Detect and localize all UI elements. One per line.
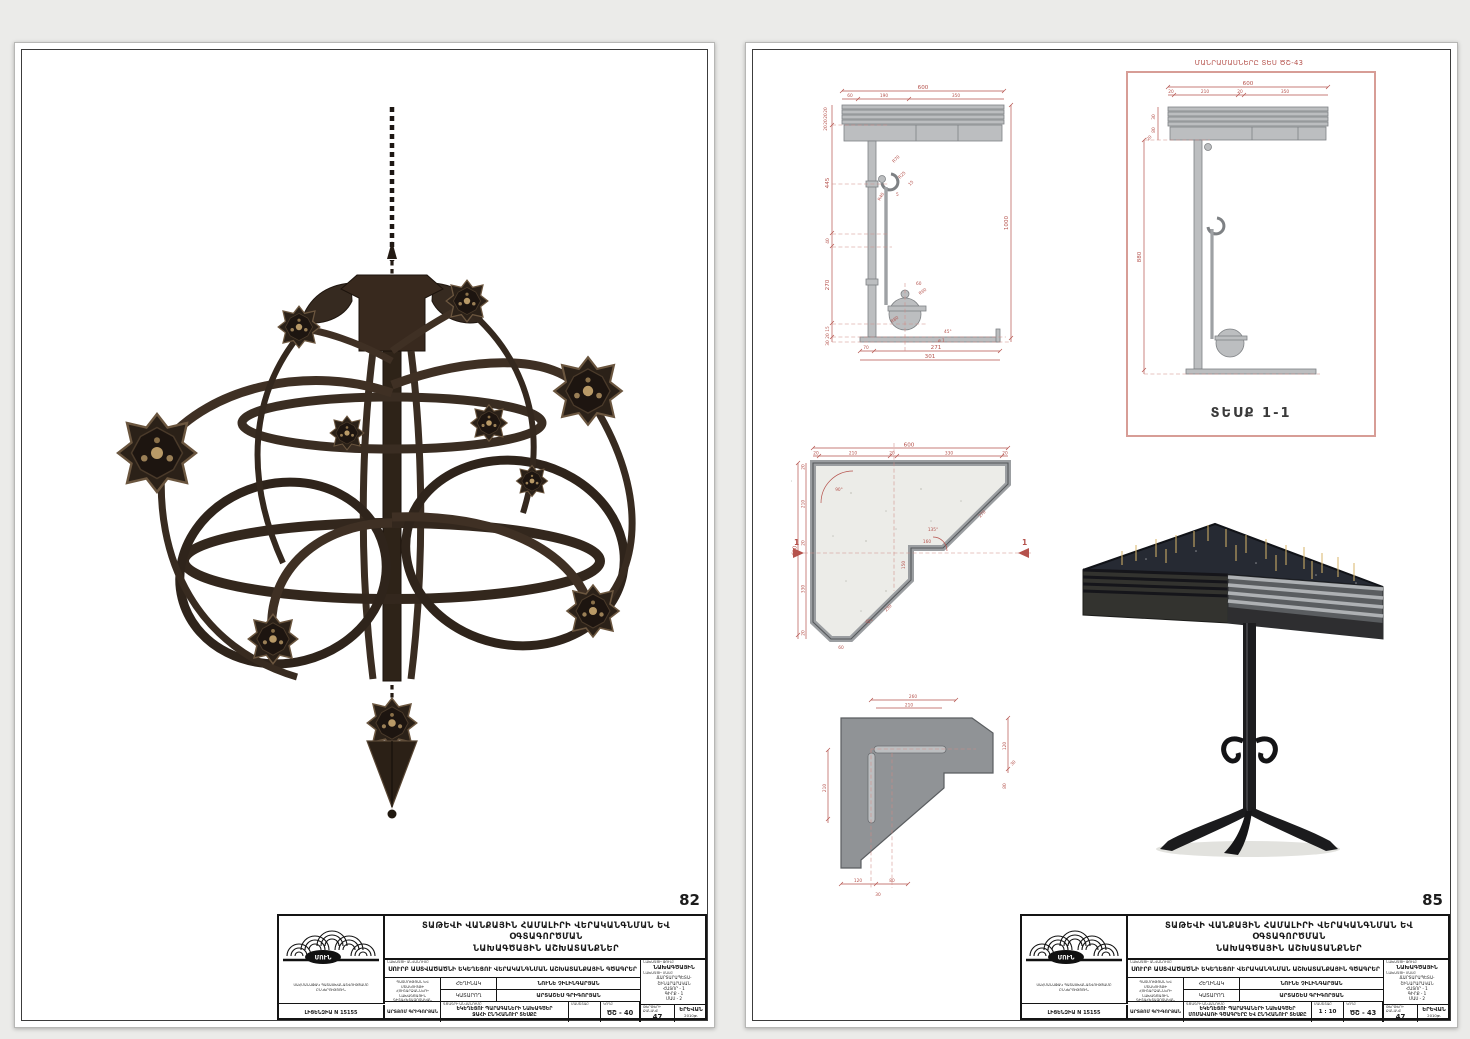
dim-label: 160: [923, 539, 931, 545]
dim-label: 600: [904, 443, 915, 449]
dim-label: R25: [897, 170, 907, 180]
candle-table-render: [1076, 511, 1421, 863]
section-b-metal: [1168, 107, 1328, 374]
license-number: ԼԻՑԵՆԶԻԱ N 15155: [279, 1005, 385, 1020]
performer-name: ԱՐՏԱՇԵՍ ԳՐԻԳՈՐՅԱՆ: [1240, 990, 1384, 1002]
detail-plate-drawing: 260 210 210 120 30 80 120 80 30: [816, 688, 1021, 908]
dim-label: 20: [823, 119, 829, 125]
code-label: ԿՈԴԸ: [1344, 1002, 1382, 1007]
drawing-album-view: 82 ՄՈՒՆ ՍԱՀՄԱՆԱՓԱԿ ՊԱՏԱՍԽ: [0, 0, 1470, 1039]
album-header: ՏԱԹԵՎԻ ՎԱՆՔԱՅԻՆ ՀԱՄԱԼԻՐԻ ՎԵՐԱԿԱՆԳՆՄԱՆ ԵՎ…: [385, 916, 707, 960]
dim-label: 60: [838, 645, 844, 651]
dim-label: 270: [825, 279, 831, 290]
author-label: ՀԵՂԻՆԱԿ: [441, 978, 497, 990]
project-label: ՆԱԽԱԳԾԻ ԱՆՎԱՆՈՒՄԸ: [385, 960, 640, 965]
license-number: ԼԻՑԵՆԶԻԱ N 15155: [1022, 1005, 1128, 1020]
project-cell: ՆԱԽԱԳԾԻ ԱՆՎԱՆՈՒՄԸ ՍՈՒՐԲ ԱՍՏՎԱԾԱԾՆԻ ԵԿԵՂԵ…: [1128, 960, 1384, 978]
section-drawing-b: 600 20 210 20 350 30 80 20 880: [1130, 77, 1370, 393]
project-name: ՍՈՒՐԲ ԱՍՏՎԱԾԱԾՆԻ ԵԿԵՂԵՑՈՒ ՎԵՐԱԿԱՆԳՆՄԱՆ Ա…: [385, 966, 640, 973]
title-block: ՄՈՒՆ ՍԱՀՄԱՆԱՓԱԿ ՊԱՏԱՍԽԱՆԱՏՎՈՒԹՅԱՄԲ ԸՆԿԵՐ…: [1020, 914, 1450, 1020]
code-cell: ԿՈԴԸ ԾՇ - 43: [1344, 1002, 1384, 1022]
dim-label: 20: [823, 125, 829, 131]
project-name: ՍՈՒՐԲ ԱՍՏՎԱԾԱԾՆԻ ԵԿԵՂԵՑՈՒ ՎԵՐԱԿԱՆԳՆՄԱՆ Ա…: [1128, 966, 1383, 973]
chandelier-render: [51, 93, 696, 868]
section-flag: 1: [1022, 538, 1027, 547]
dim-label: 20: [823, 107, 829, 113]
detail-body: [841, 718, 993, 868]
dim-label: 15: [907, 179, 915, 187]
dim-label: 20: [825, 333, 831, 339]
performer-label: ԿԱՏԱՐՈՂ: [1184, 990, 1240, 1002]
project-cell: ՆԱԽԱԳԾԻ ԱՆՎԱՆՈՒՄԸ ՍՈՒՐԲ ԱՍՏՎԱԾԱԾՆԻ ԵԿԵՂԵ…: [385, 960, 641, 978]
company-name: ՍԱՀՄԱՆԱՓԱԿ ՊԱՏԱՍԽԱՆԱՏՎՈՒԹՅԱՄԲ ԸՆԿԵՐՈՒԹՅՈ…: [279, 972, 385, 1004]
part-line5: ՄԱՍ - 2: [1384, 996, 1450, 1001]
code-label: ԿՈԴԸ: [601, 1002, 639, 1007]
dim-label: 30: [875, 892, 881, 898]
city-cell: ԵՐԵՎԱՆ 2010թ.: [1418, 1004, 1450, 1022]
table-pedestal: [1156, 623, 1340, 857]
dim-label: 210: [1201, 89, 1209, 95]
scale-value: 1 : 10: [1312, 1009, 1343, 1015]
dim-label: 600: [1243, 81, 1254, 87]
dim-label: 20: [801, 630, 807, 636]
sheet-count-label: ԹԵՐԹԵՐԻ ՔԱՆԱԿԸ: [1384, 1005, 1417, 1013]
album-header-line2: ՆԱԽԱԳԾԱՅԻՆ ԱՇԽԱՏԱՆՔՆԵՐ: [473, 943, 619, 954]
dim-label: 350: [1281, 89, 1289, 95]
dim-label: 60: [916, 281, 922, 287]
dim-label: 20: [1145, 134, 1153, 142]
plan-drawing: 600 20 210 20 330 20 600 20 210 20 330 2…: [791, 441, 1031, 676]
dim-label: 1000: [1004, 215, 1010, 230]
dim-label: 20: [1168, 89, 1174, 95]
dim-label: R70: [891, 154, 901, 164]
sheet-chandelier: 82 ՄՈՒՆ ՍԱՀՄԱՆԱՓԱԿ ՊԱՏԱՍԽ: [14, 42, 715, 1028]
logo-text: ՄՈՒՆ: [315, 955, 333, 962]
year-value: 2010թ.: [1418, 1013, 1450, 1018]
sheet-count-cell: ԹԵՐԹԵՐԻ ՔԱՆԱԿԸ 47: [1384, 1004, 1418, 1022]
dim-label: 30: [1151, 114, 1157, 120]
dim-label: 120: [854, 878, 862, 884]
logo-cell: ՄՈՒՆ: [1022, 916, 1128, 972]
section-drawing-a: 600 60 190 350 20 20 20 20 445 40 270 15…: [796, 83, 1018, 405]
title-block: ՄՈՒՆ ՍԱՀՄԱՆԱՓԱԿ ՊԱՏԱՍԽԱՆԱՏՎՈՒԹՅԱՄԲ ԸՆԿԵՐ…: [277, 914, 707, 1020]
dim-label: 301: [925, 354, 936, 360]
dim-label: 120: [1002, 742, 1008, 750]
logo-text: ՄՈՒՆ: [1058, 955, 1076, 962]
section-caption: ՏԵՍՔ 1-1: [1128, 406, 1374, 421]
code-value: ԾՇ - 40: [601, 1009, 639, 1017]
dim-label: 15: [825, 326, 831, 332]
dim-label: 60: [847, 93, 853, 99]
sheet-candle-stand: 600 60 190 350 20 20 20 20 445 40 270 15…: [745, 42, 1458, 1028]
detail-reference-box: 600 20 210 20 350 30 80 20 880: [1126, 71, 1376, 437]
dim-label: 600: [918, 85, 929, 91]
dim-label: 330: [945, 451, 953, 457]
dim-label: 445: [825, 177, 831, 188]
dim-label: 210: [849, 451, 857, 457]
dim-label: 210: [905, 703, 913, 709]
scale-label: ՄԱՍՇՏԱԲ: [569, 1002, 600, 1007]
dim-label: 80: [1002, 783, 1008, 789]
company-logo: ՄՈՒՆ: [279, 916, 383, 968]
dim-label: 20: [1237, 89, 1243, 95]
dim-label: 880: [1137, 251, 1143, 262]
author-label: ՀԵՂԻՆԱԿ: [1184, 978, 1240, 990]
author-name: ՆՈՒՆԵ ՉԻԼԻՆԳԱՐՅԱՆ: [497, 978, 641, 990]
album-header: ՏԱԹԵՎԻ ՎԱՆՔԱՅԻՆ ՀԱՄԱԼԻՐԻ ՎԵՐԱԿԱՆԳՆՄԱՆ ԵՎ…: [1128, 916, 1450, 960]
dim-label: 5: [896, 192, 899, 198]
dim-label: 20: [1002, 451, 1008, 457]
dim-label: ø 1: [938, 338, 945, 344]
album-header-line1: ՏԱԹԵՎԻ ՎԱՆՔԱՅԻՆ ՀԱՄԱԼԻՐԻ ՎԵՐԱԿԱՆԳՆՄԱՆ ԵՎ…: [385, 920, 707, 943]
reference-note: ՄԱՆՐԱՄԱՍՆԵՐԸ ՏԵՍ ԾՇ-43: [1126, 59, 1372, 67]
drawing-title-line2: ՋԱՀԻ ԸՆԴՀԱՆՈՒՐ ՏԵՍՔԸ: [441, 1013, 568, 1019]
scale-label: ՄԱՍՇՏԱԲ: [1312, 1002, 1343, 1007]
album-header-line2: ՆԱԽԱԳԾԱՅԻՆ ԱՇԽԱՏԱՆՔՆԵՐ: [1216, 943, 1362, 954]
org-department: ՊԱՏՄՈՒԹՅԱՆ ԵՎ ՄՇԱԿՈՒՅԹԻ ՀՈՒՇԱՐՁԱՆՆԵՐԻ ՆԱ…: [1128, 978, 1184, 1002]
album-header-line1: ՏԱԹԵՎԻ ՎԱՆՔԱՅԻՆ ՀԱՄԱԼԻՐԻ ՎԵՐԱԿԱՆԳՆՄԱՆ ԵՎ…: [1128, 920, 1450, 943]
dim-label: 30: [1009, 759, 1017, 767]
performer-name: ԱՐՏԱՇԵՍ ԳՐԻԳՈՐՅԱՆ: [497, 990, 641, 1002]
dim-label: 271: [931, 345, 942, 351]
chandelier-pendant: [367, 698, 417, 818]
dim-label: 210: [822, 784, 828, 792]
dim-label: 70: [863, 345, 869, 351]
company-logo: ՄՈՒՆ: [1022, 916, 1126, 968]
extension-lines: [832, 125, 1011, 353]
page-number: 85: [1422, 891, 1443, 909]
section-flag: 1: [794, 538, 799, 547]
drawing-title-line1: ԵԿԵՂԵՑՈՒ ՊԱՐԱԳԱՆԵՐԻ ՆԱԽԱԳԾԵՐ: [441, 1007, 568, 1013]
dim-label: 190: [880, 93, 888, 99]
dim-label: 20: [813, 451, 819, 457]
code-cell: ԿՈԴԸ ԾՇ - 40: [601, 1002, 641, 1022]
project-label: ՆԱԽԱԳԾԻ ԱՆՎԱՆՈՒՄԸ: [1128, 960, 1383, 965]
signature-name: ԱՐՏՅՈՄ ԳՐԻԳՈՐՅԱՆ: [1128, 1002, 1184, 1022]
year-value: 2010թ.: [675, 1013, 707, 1018]
section-a-metal: [842, 105, 1004, 342]
performer-label: ԿԱՏԱՐՈՂ: [441, 990, 497, 1002]
dim-label: 40: [825, 238, 831, 244]
dim-label: 350: [952, 93, 960, 99]
dim-label: 90°: [835, 487, 843, 493]
scale-cell: ՄԱՍՇՏԱԲ 1 : 10: [1312, 1002, 1344, 1022]
drawing-title-line2: ՄՈՄԱՎԱՌԻ ԳԾԱԳՐԵՐԸ ԵՎ ԸՆԴՀԱՆՈՒՐ ՏԵՍՔԸ: [1184, 1013, 1311, 1019]
org-department: ՊԱՏՄՈՒԹՅԱՆ ԵՎ ՄՇԱԿՈՒՅԹԻ ՀՈՒՇԱՐՁԱՆՆԵՐԻ ՆԱ…: [385, 978, 441, 1002]
dim-label: 45°: [865, 619, 873, 625]
sheet-count-value: 47: [641, 1013, 674, 1021]
city-cell: ԵՐԵՎԱՆ 2010թ.: [675, 1004, 707, 1022]
dim-label: 20: [801, 464, 807, 470]
dim-label: 80: [1151, 127, 1157, 133]
scale-cell: ՄԱՍՇՏԱԲ: [569, 1002, 601, 1022]
dim-label: 30: [825, 340, 831, 346]
sheet-count-cell: ԹԵՐԹԵՐԻ ՔԱՆԱԿԸ 47: [641, 1004, 675, 1022]
author-name: ՆՈՒՆԵ ՉԻԼԻՆԳԱՐՅԱՆ: [1240, 978, 1384, 990]
dim-label: R60: [918, 287, 929, 297]
sheet-count-value: 47: [1384, 1013, 1417, 1021]
sheet-count-label: ԹԵՐԹԵՐԻ ՔԱՆԱԿԸ: [641, 1005, 674, 1013]
drawing-title-cell: ԳԾԱԳՐԻ ԱՆՎԱՆՈՒՄԸ ԵԿԵՂԵՑՈՒ ՊԱՐԱԳԱՆԵՐԻ ՆԱԽ…: [1184, 1002, 1312, 1022]
dim-label: 45°: [944, 329, 952, 335]
logo-cell: ՄՈՒՆ: [279, 916, 385, 972]
dim-label: 20: [823, 113, 829, 119]
company-name: ՍԱՀՄԱՆԱՓԱԿ ՊԱՏԱՍԽԱՆԱՏՎՈՒԹՅԱՄԲ ԸՆԿԵՐՈՒԹՅՈ…: [1022, 972, 1128, 1004]
page-number: 82: [679, 891, 700, 909]
signature-name: ԱՐՏՅՈՄ ԳՐԻԳՈՐՅԱՆ: [385, 1002, 441, 1022]
drawing-title-cell: ԳԾԱԳՐԻ ԱՆՎԱՆՈՒՄԸ ԵԿԵՂԵՑՈՒ ՊԱՐԱԳԱՆԵՐԻ ՆԱԽ…: [441, 1002, 569, 1022]
dim-label: 330: [801, 585, 807, 593]
dim-label: 135°: [928, 527, 938, 533]
dim-label: 20: [801, 540, 807, 546]
dim-label: 150: [901, 561, 907, 569]
dim-label: 260: [909, 694, 917, 700]
code-value: ԾՇ - 43: [1344, 1009, 1382, 1017]
dim-label: 210: [801, 500, 807, 508]
part-line5: ՄԱՍ - 2: [641, 996, 707, 1001]
drawing-title-line1: ԵԿԵՂԵՑՈՒ ՊԱՐԱԳԱՆԵՐԻ ՆԱԽԱԳԾԵՐ: [1184, 1007, 1311, 1013]
